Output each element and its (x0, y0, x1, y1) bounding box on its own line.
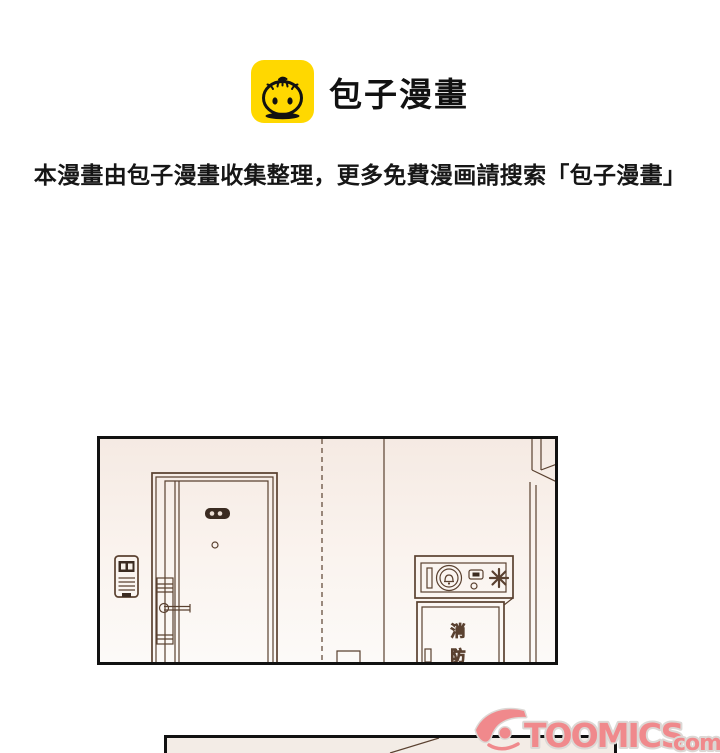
door-number-plate (205, 508, 230, 519)
bun-eye-left (272, 97, 277, 104)
fire-cabinet-door: 消 防 (417, 598, 513, 662)
fire-cabinet: 消 防 (415, 556, 513, 662)
doorbell-intercom (115, 556, 138, 597)
wall-corner-lines (322, 439, 384, 662)
fire-cabinet-label-1: 消 (450, 622, 465, 640)
baozi-logo-icon (251, 60, 314, 123)
wall-pipe (530, 439, 555, 662)
collection-notice: 本漫畫由包子漫畫收集整理，更多免費漫画請搜索「包子漫畫」 (0, 156, 720, 190)
bun-eye-right (287, 97, 292, 104)
bun-shadow (266, 113, 300, 119)
watermark-brand-text: TOOMICS (524, 716, 683, 753)
door-lock (157, 578, 190, 644)
cabinet-handle (425, 649, 431, 662)
fire-alarm-indicator-panel (415, 556, 513, 598)
watermark-tld-text: com (673, 731, 720, 753)
strobe-star-icon (490, 569, 508, 587)
comic-panel-hallway: 消 防 (97, 436, 558, 665)
panel2-sketch-line (390, 738, 439, 753)
toomics-logo-swoosh (476, 709, 526, 748)
fire-cabinet-label-2: 防 (450, 647, 465, 662)
door-peephole (212, 542, 218, 548)
brand-header: 包子漫畫 (0, 60, 720, 123)
comic-page: 包子漫畫 本漫畫由包子漫畫收集整理，更多免費漫画請搜索「包子漫畫」 (0, 0, 720, 753)
floor-threshold (337, 651, 360, 662)
apartment-door (152, 473, 277, 662)
toomics-watermark: TOOMICS com (472, 704, 720, 753)
brand-name: 包子漫畫 (329, 68, 469, 116)
